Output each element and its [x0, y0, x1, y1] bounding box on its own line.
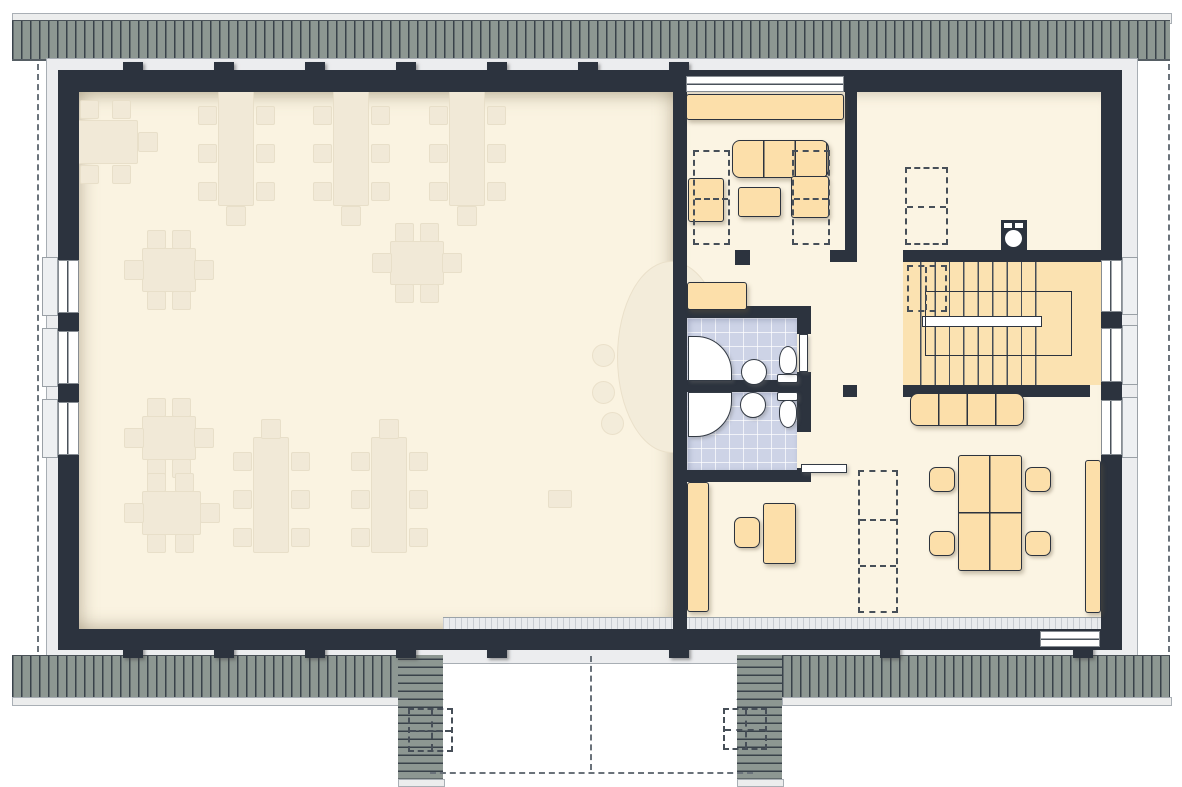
chair — [138, 132, 158, 152]
chair — [147, 291, 166, 310]
dormer-cheek-edge — [398, 779, 445, 787]
washing-machine-control — [1015, 223, 1023, 228]
chair — [112, 100, 131, 119]
window-seat-2-6 — [686, 94, 844, 120]
window — [58, 402, 79, 455]
skylight-line — [860, 565, 896, 567]
skylight-line — [745, 710, 747, 748]
chair — [124, 260, 144, 280]
skylight-line — [907, 206, 946, 208]
toilet-bowl-icon — [779, 346, 797, 374]
stage-box — [548, 490, 572, 508]
chair — [409, 528, 428, 547]
skylight-projection — [792, 150, 830, 245]
stair-flight-outline — [925, 291, 1072, 356]
cabinet-2-3-right — [1085, 460, 1101, 613]
window-sill — [42, 257, 58, 316]
sink-icon — [740, 392, 766, 418]
window — [58, 331, 79, 384]
wall — [673, 70, 687, 650]
sofa-2-3 — [910, 393, 1024, 426]
chair — [351, 490, 370, 509]
wall — [830, 250, 857, 262]
chair — [487, 144, 506, 163]
table — [75, 120, 138, 164]
skylight-projection — [408, 708, 453, 752]
chair — [379, 419, 399, 439]
chair — [313, 106, 332, 125]
chair — [291, 528, 310, 547]
chair — [487, 182, 506, 201]
skylight-projection — [723, 708, 767, 750]
sink-icon — [741, 359, 767, 385]
table — [218, 88, 254, 206]
chair — [351, 528, 370, 547]
chair-2-3 — [929, 467, 955, 492]
roof-outline-dashed — [1168, 64, 1172, 652]
chair — [371, 106, 390, 125]
desk-2-3 — [763, 503, 796, 564]
chair-2-3 — [1025, 531, 1051, 556]
wall — [797, 392, 811, 432]
chair — [194, 260, 214, 280]
window-sill — [1122, 257, 1138, 315]
chair — [175, 473, 194, 492]
chair — [256, 182, 275, 201]
roof-bottom-right — [782, 655, 1170, 701]
window — [686, 76, 844, 92]
stool — [592, 381, 615, 404]
conference-table-2-3 — [958, 455, 1022, 571]
chair — [175, 534, 194, 553]
chair — [80, 165, 99, 184]
window — [1101, 260, 1122, 312]
wall — [797, 306, 811, 334]
door-leaf — [801, 464, 847, 473]
chair — [124, 428, 144, 448]
chair — [341, 206, 361, 226]
table — [333, 88, 369, 206]
wall — [735, 250, 750, 265]
wall — [843, 385, 857, 397]
coffee-table-2-6 — [738, 187, 781, 217]
roof-outline-dashed — [590, 656, 594, 770]
skylight-projection — [858, 470, 898, 613]
chair — [80, 100, 99, 119]
toilet-tank-icon — [777, 374, 798, 383]
wall — [673, 470, 811, 482]
window — [1040, 631, 1100, 647]
chair — [429, 106, 448, 125]
skylight-projection — [693, 150, 730, 245]
skylight-line — [431, 710, 433, 750]
roof-outline-dashed — [430, 772, 753, 776]
chair — [198, 106, 217, 125]
chair — [351, 452, 370, 471]
chair — [313, 144, 332, 163]
door-leaf — [799, 334, 808, 372]
skylight-line — [860, 519, 896, 521]
desk-chair-2-3 — [734, 517, 760, 548]
chair — [256, 106, 275, 125]
wall — [797, 372, 811, 392]
table — [142, 416, 196, 460]
chair — [147, 398, 166, 417]
chair — [233, 490, 252, 509]
chair — [395, 223, 414, 242]
table — [142, 491, 201, 535]
cabinet-2-3-left — [687, 482, 709, 612]
window-sill — [1122, 397, 1138, 458]
window — [1101, 400, 1122, 455]
wall — [845, 70, 857, 250]
chair — [233, 452, 252, 471]
table — [142, 248, 196, 292]
window-sill — [42, 328, 58, 387]
chair-2-3 — [929, 531, 955, 556]
chair-2-3 — [1025, 467, 1051, 492]
floor-plan: 2.1 2.2 2.3 2.4 2.5 2.6 — [0, 0, 1182, 787]
stool — [592, 344, 615, 367]
cabinet-2-6 — [687, 282, 747, 310]
chair — [429, 182, 448, 201]
roof-eave-edge — [782, 697, 1172, 706]
chair — [124, 503, 144, 523]
washing-machine-drum — [1005, 230, 1022, 247]
chair — [420, 223, 439, 242]
chair — [198, 144, 217, 163]
wall — [58, 70, 1122, 92]
skylight-projection — [905, 167, 948, 245]
chair — [420, 284, 439, 303]
chair — [457, 206, 477, 226]
chair — [147, 230, 166, 249]
skylight-projection — [907, 265, 947, 312]
chair — [112, 165, 131, 184]
chair — [198, 182, 217, 201]
table — [253, 437, 289, 553]
chair — [194, 428, 214, 448]
chair — [261, 419, 281, 439]
chair — [291, 452, 310, 471]
chair — [372, 253, 392, 273]
skylight-line — [794, 198, 828, 200]
chair — [487, 106, 506, 125]
wall — [58, 629, 1122, 650]
chair — [172, 291, 191, 310]
chair — [429, 144, 448, 163]
toilet-bowl-icon — [779, 400, 797, 428]
chair — [395, 284, 414, 303]
table — [449, 88, 485, 206]
chair — [147, 534, 166, 553]
window-sill — [42, 399, 58, 458]
window — [58, 260, 79, 313]
chair — [313, 182, 332, 201]
skylight-line — [695, 198, 728, 200]
washing-machine-icon — [1001, 220, 1027, 252]
chair — [371, 144, 390, 163]
table — [390, 241, 444, 285]
chair — [226, 206, 246, 226]
roof-top — [12, 20, 1170, 61]
washing-machine-control — [1004, 223, 1012, 228]
chair — [172, 398, 191, 417]
window — [1101, 328, 1122, 382]
roof-bottom-left — [12, 655, 398, 701]
chair — [147, 473, 166, 492]
chair — [409, 490, 428, 509]
stool — [601, 412, 624, 435]
roof-eave-edge — [12, 697, 400, 706]
skylight-line — [925, 267, 927, 310]
window-sill — [1122, 325, 1138, 385]
chair — [291, 490, 310, 509]
roof-outline-dashed — [37, 64, 41, 652]
chair — [233, 528, 252, 547]
table — [371, 437, 407, 553]
chair — [442, 253, 462, 273]
chair — [200, 503, 220, 523]
chair — [371, 182, 390, 201]
dormer-cheek-edge — [737, 779, 784, 787]
chair — [409, 452, 428, 471]
chair — [256, 144, 275, 163]
chair — [172, 230, 191, 249]
